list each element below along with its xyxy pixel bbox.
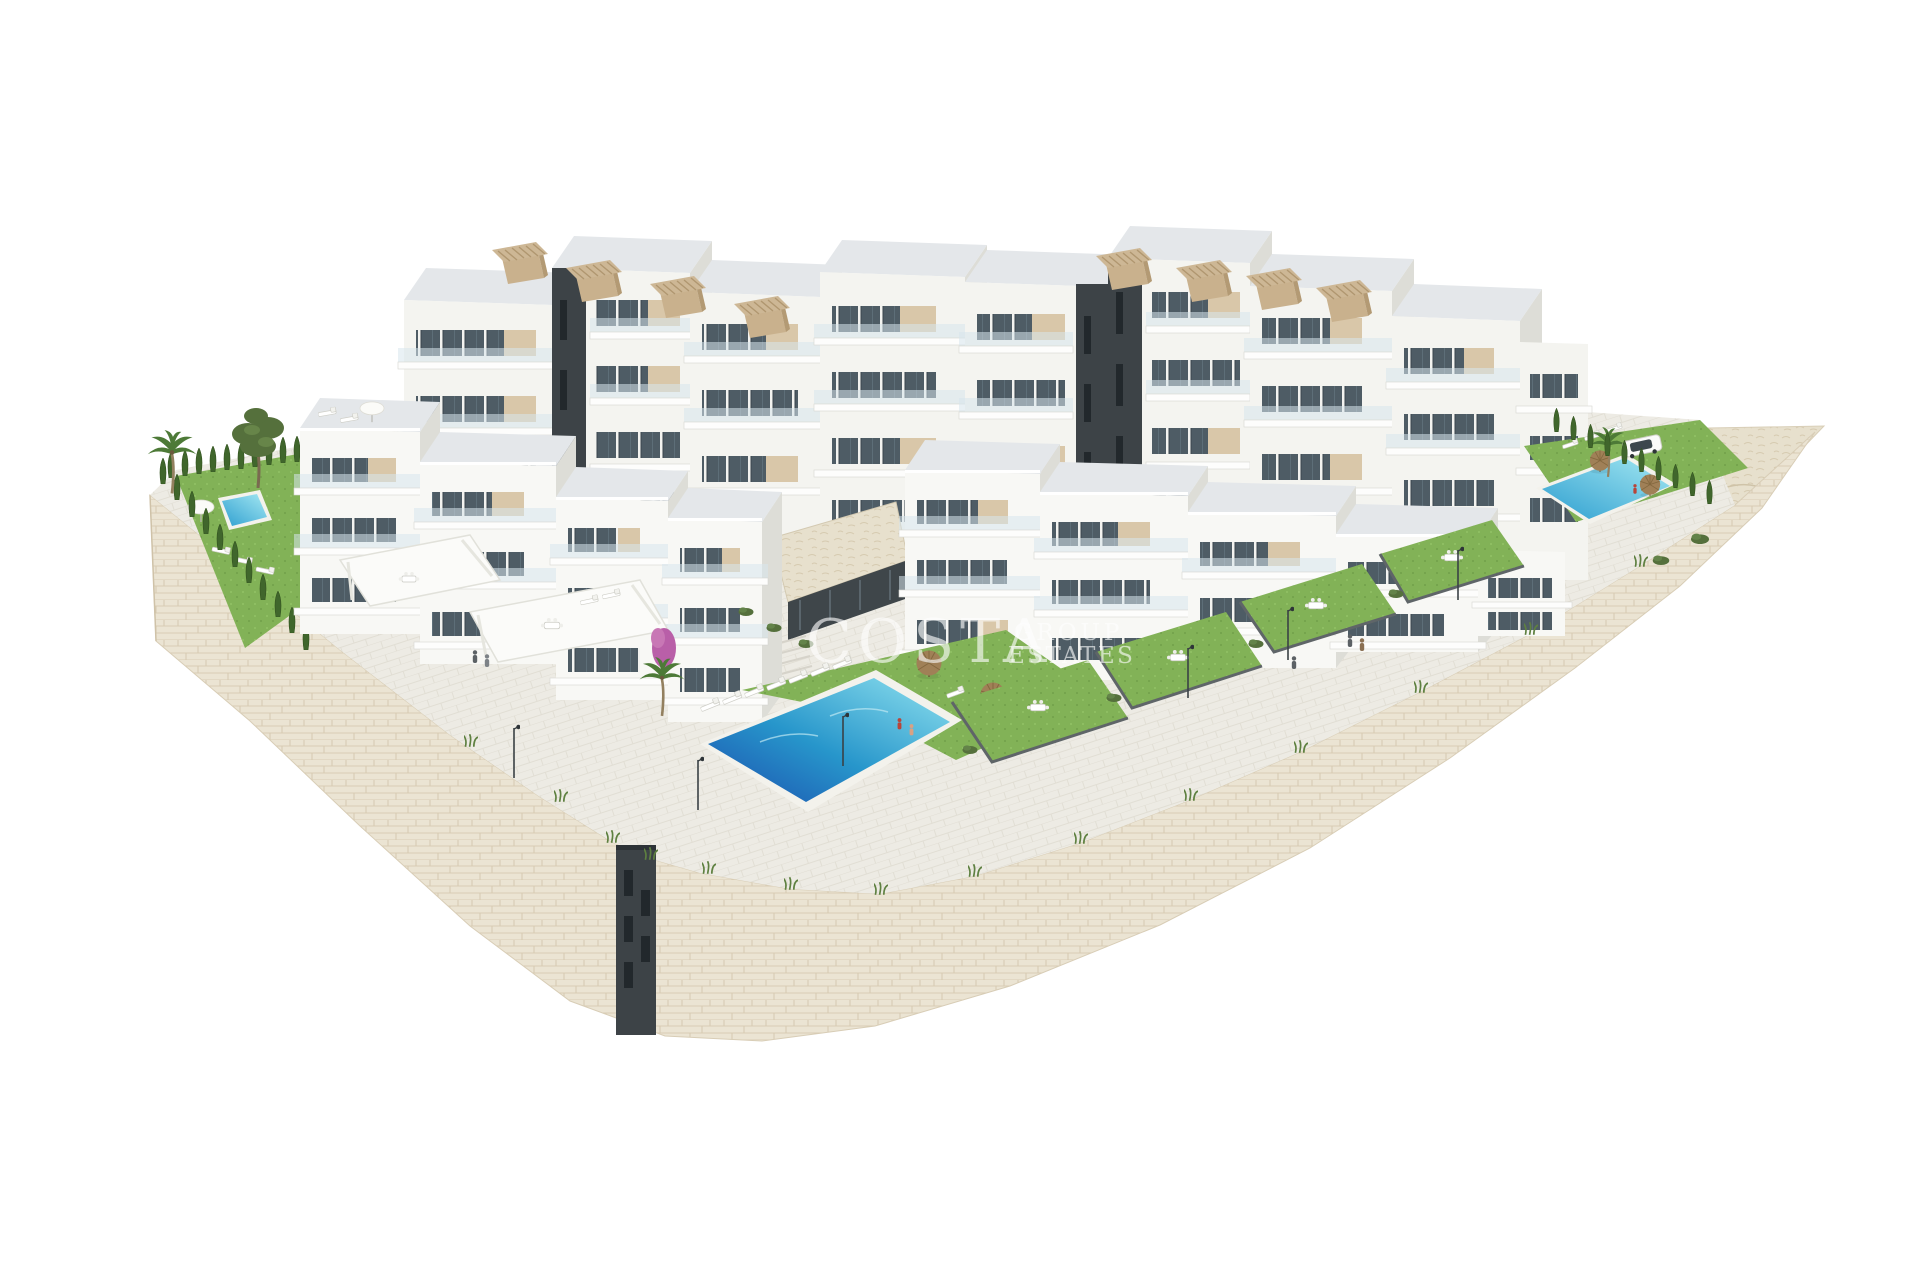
garage-stair-core xyxy=(616,845,656,1035)
render-canvas: COSTA GROUP ESTATES xyxy=(0,0,1920,1280)
complex-render: COSTA GROUP ESTATES xyxy=(0,0,1920,1280)
watermark-bottom-text: ESTATES xyxy=(1008,643,1135,669)
